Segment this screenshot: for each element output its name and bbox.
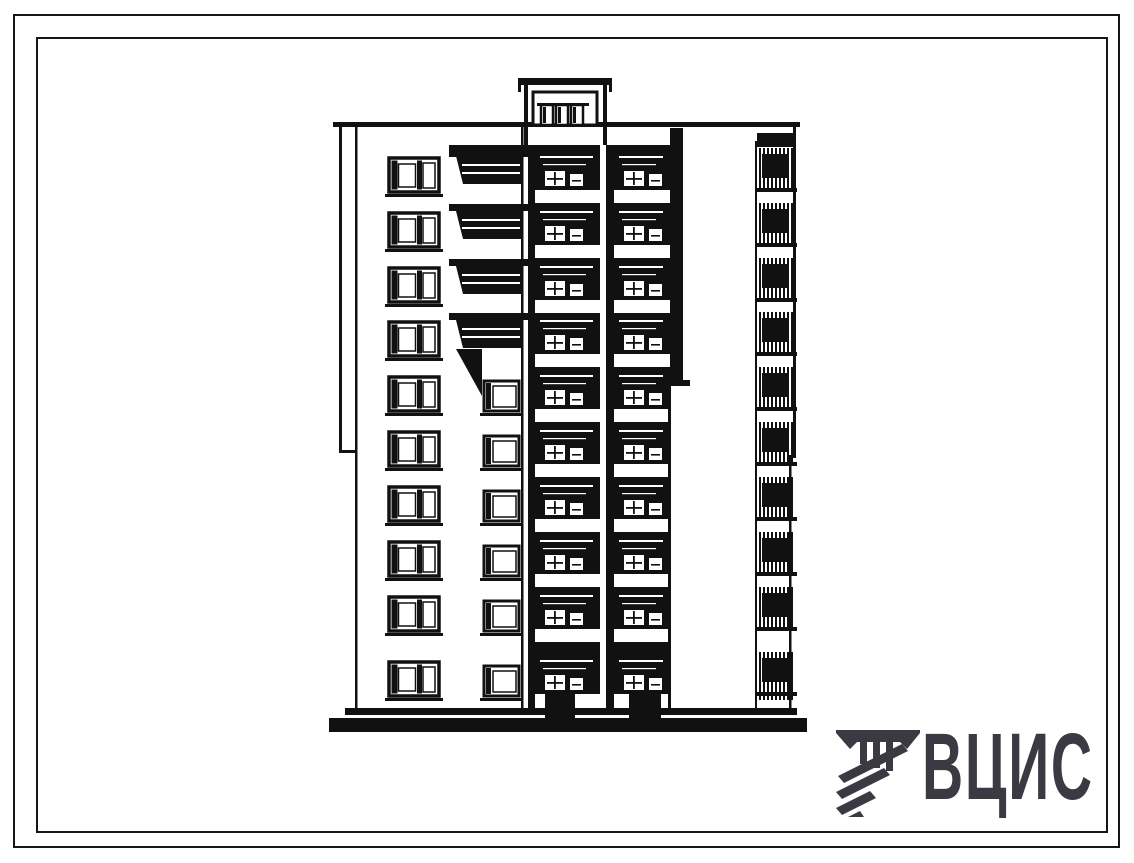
end-loggia-column bbox=[755, 127, 797, 712]
penthouse bbox=[518, 78, 612, 146]
left-wing-windows bbox=[385, 158, 443, 701]
ground-line bbox=[329, 708, 807, 732]
drawing-sheet: { "sheet": { "background": "#ffffff", "f… bbox=[0, 0, 1134, 863]
balcony-column bbox=[449, 149, 529, 701]
vtsis-logo: ВЦИС bbox=[836, 720, 1134, 818]
logo-text: ВЦИС bbox=[922, 720, 1094, 815]
hatched-columns-emblem-icon bbox=[836, 724, 920, 818]
